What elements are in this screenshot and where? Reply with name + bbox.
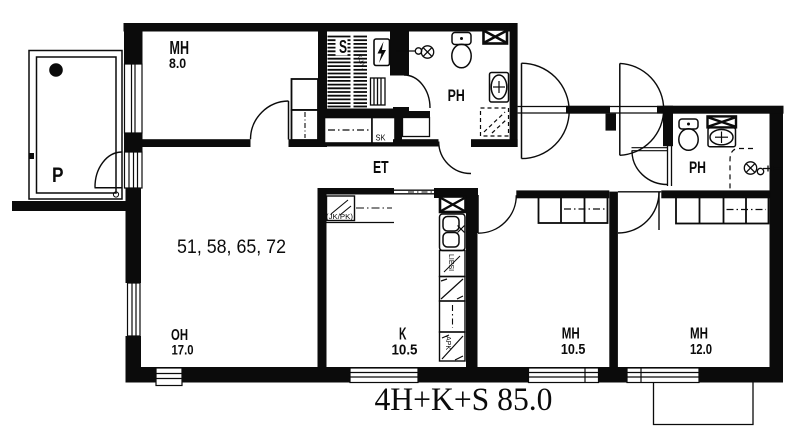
svg-text:S: S (339, 37, 347, 57)
svg-text:ET: ET (373, 157, 389, 177)
svg-text:PH: PH (689, 158, 706, 177)
svg-text:12.0: 12.0 (690, 342, 712, 358)
svg-text:APK: APK (444, 336, 451, 350)
svg-text:MH: MH (690, 325, 708, 342)
svg-text:10.5: 10.5 (392, 342, 418, 358)
svg-text:17.0: 17.0 (172, 341, 194, 357)
svg-text:P: P (52, 164, 64, 187)
svg-text:PH: PH (448, 86, 465, 105)
svg-text:K: K (399, 323, 407, 343)
svg-text:8.0: 8.0 (169, 56, 186, 71)
svg-text:4H+K+S 85.0: 4H+K+S 85.0 (375, 382, 553, 418)
svg-text:51, 58, 65, 72: 51, 58, 65, 72 (177, 237, 286, 258)
svg-text:MH: MH (562, 325, 580, 342)
svg-text:SK: SK (376, 134, 387, 143)
svg-text:MH: MH (170, 38, 190, 58)
svg-text:(JK/PK): (JK/PK) (326, 212, 354, 221)
svg-text:10.5: 10.5 (561, 342, 586, 358)
